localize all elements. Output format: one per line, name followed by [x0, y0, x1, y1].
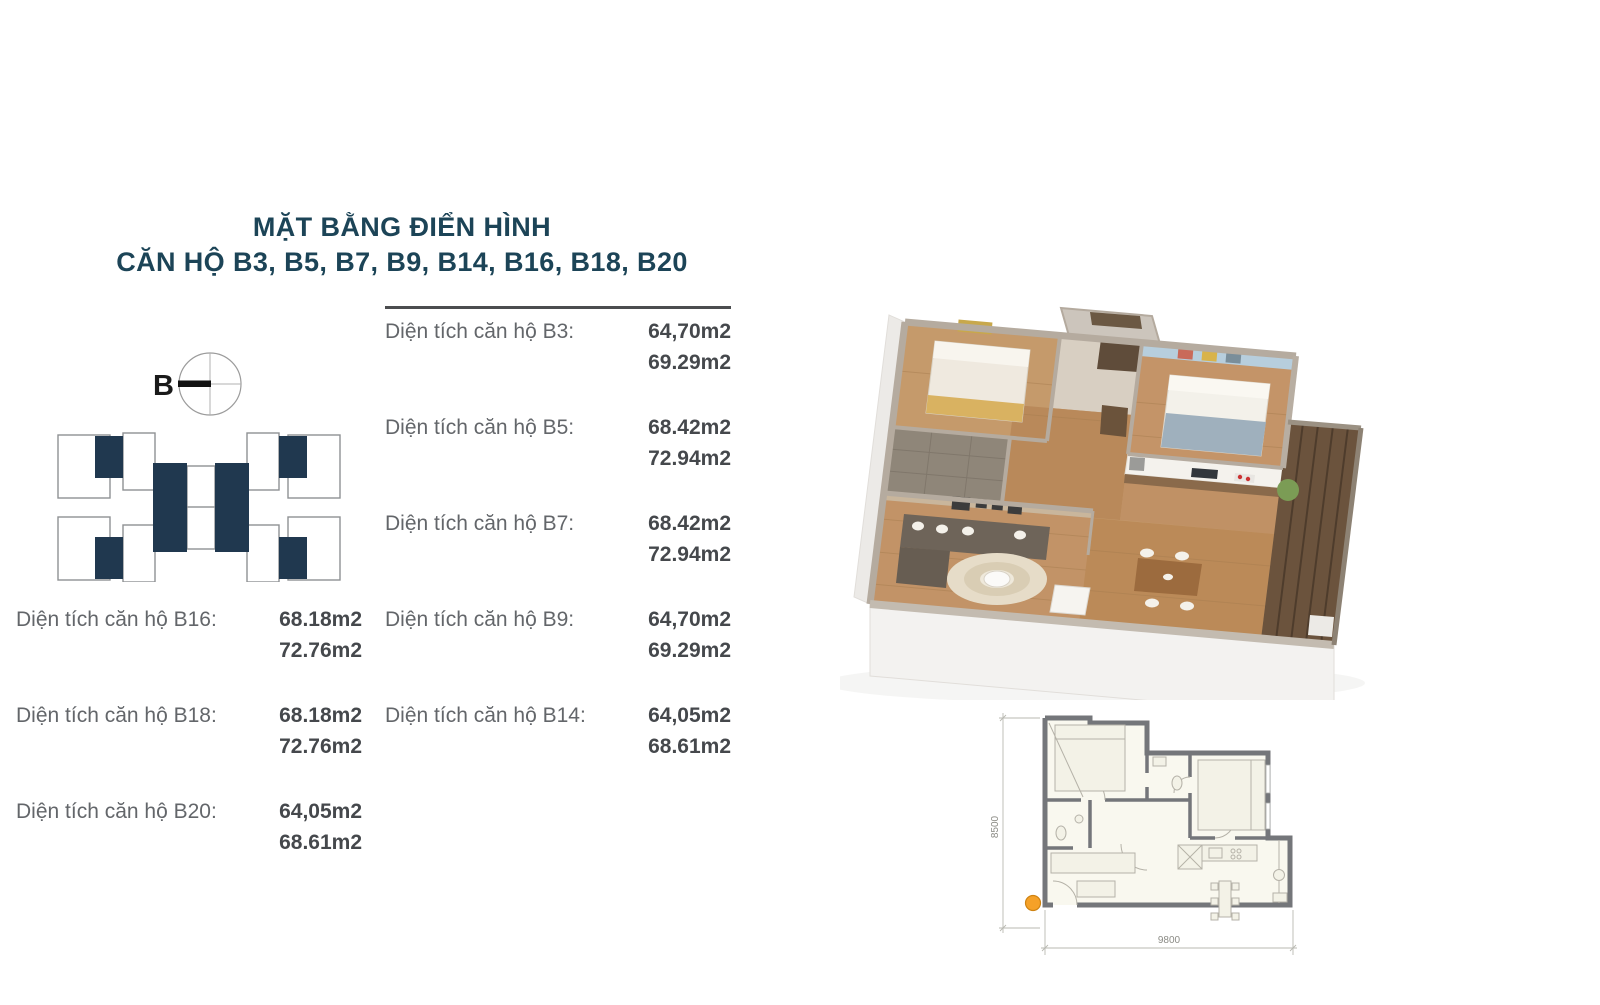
kitchen-fridge [1129, 457, 1145, 471]
plan-window-2 [1266, 803, 1270, 829]
compass-icon: B [153, 353, 241, 415]
coffee-table [984, 571, 1010, 587]
dim-width-label: 9800 [1158, 935, 1181, 946]
entrance-marker-dot [1026, 896, 1041, 911]
page-title-line1: MẶT BẰNG ĐIỂN HÌNH [112, 210, 692, 245]
area-entry-b7: Diện tích căn hộ B7: 68.42m2 72.94m2 [385, 508, 731, 570]
area-label-b16: Diện tích căn hộ B16: [16, 604, 217, 635]
area-b9-value1: 64,70m2 [648, 604, 731, 635]
area-entry-b14: Diện tích căn hộ B14: 64,05m2 68.61m2 [385, 700, 731, 762]
apartment-3d-render [840, 285, 1558, 700]
area-label-b18: Diện tích căn hộ B18: [16, 700, 217, 731]
area-label-b7: Diện tích căn hộ B7: [385, 508, 574, 539]
balcony-ledge [1308, 615, 1334, 637]
bathroom-floor [884, 427, 1010, 503]
area-label-b14: Diện tích căn hộ B14: [385, 700, 586, 731]
area-entry-b16: Diện tích căn hộ B16: 68.18m2 72.76m2 [16, 604, 362, 666]
area-b20-value1: 64,05m2 [279, 796, 362, 827]
area-values-b18: 68.18m2 72.76m2 [279, 700, 362, 762]
area-b16-value2: 72.76m2 [279, 635, 362, 666]
area-b7-value2: 72.94m2 [648, 539, 731, 570]
area-values-b5: 68.42m2 72.94m2 [648, 412, 731, 474]
area-b5-value2: 72.94m2 [648, 443, 731, 474]
stove-burner-1 [1238, 475, 1242, 479]
area-b14-value2: 68.61m2 [648, 731, 731, 762]
area-b7-value1: 68.42m2 [648, 508, 731, 539]
area-b9-value2: 69.29m2 [648, 635, 731, 666]
entry-door [1100, 405, 1128, 437]
area-b3-value2: 69.29m2 [648, 347, 731, 378]
building-key-plan: B [48, 330, 348, 582]
area-values-b7: 68.42m2 72.94m2 [648, 508, 731, 570]
area-b5-value1: 68.42m2 [648, 412, 731, 443]
area-values-b16: 68.18m2 72.76m2 [279, 604, 362, 666]
area-b18-value2: 72.76m2 [279, 731, 362, 762]
area-b14-value1: 64,05m2 [648, 700, 731, 731]
area-list-divider [385, 306, 731, 309]
dim-height-label: 8500 [990, 815, 1001, 838]
apartment-2d-plan: 8500 9800 [985, 685, 1330, 977]
area-entry-b5: Diện tích căn hộ B5: 68.42m2 72.94m2 [385, 412, 731, 474]
sofa-chaise [896, 547, 950, 588]
area-label-b5: Diện tích căn hộ B5: [385, 412, 574, 443]
area-b16-value1: 68.18m2 [279, 604, 362, 635]
compass-label: B [153, 370, 174, 402]
area-entry-b9: Diện tích căn hộ B9: 64,70m2 69.29m2 [385, 604, 731, 666]
area-b18-value1: 68.18m2 [279, 700, 362, 731]
lounge-chair [1050, 585, 1090, 615]
area-b20-value2: 68.61m2 [279, 827, 362, 858]
area-entry-b18: Diện tích căn hộ B18: 68.18m2 72.76m2 [16, 700, 362, 762]
brochure-page: MẶT BẰNG ĐIỂN HÌNH CĂN HỘ B3, B5, B7, B9… [0, 0, 1600, 1005]
area-values-b9: 64,70m2 69.29m2 [648, 604, 731, 666]
area-values-b14: 64,05m2 68.61m2 [648, 700, 731, 762]
area-values-b20: 64,05m2 68.61m2 [279, 796, 362, 858]
area-label-b20: Diện tích căn hộ B20: [16, 796, 217, 827]
balcony-plant [1277, 479, 1299, 501]
page-title-line2: CĂN HỘ B3, B5, B7, B9, B14, B16, B18, B2… [112, 245, 692, 280]
area-entry-b3: Diện tích căn hộ B3: 64,70m2 69.29m2 [385, 316, 731, 378]
area-entry-b20: Diện tích căn hộ B20: 64,05m2 68.61m2 [16, 796, 362, 858]
area-label-b9: Diện tích căn hộ B9: [385, 604, 574, 635]
plan-window-1 [1266, 765, 1270, 793]
area-b3-value1: 64,70m2 [648, 316, 731, 347]
stove-burner-2 [1246, 477, 1250, 481]
page-title: MẶT BẰNG ĐIỂN HÌNH CĂN HỘ B3, B5, B7, B9… [112, 210, 692, 280]
area-label-b3: Diện tích căn hộ B3: [385, 316, 574, 347]
area-values-b3: 64,70m2 69.29m2 [648, 316, 731, 378]
